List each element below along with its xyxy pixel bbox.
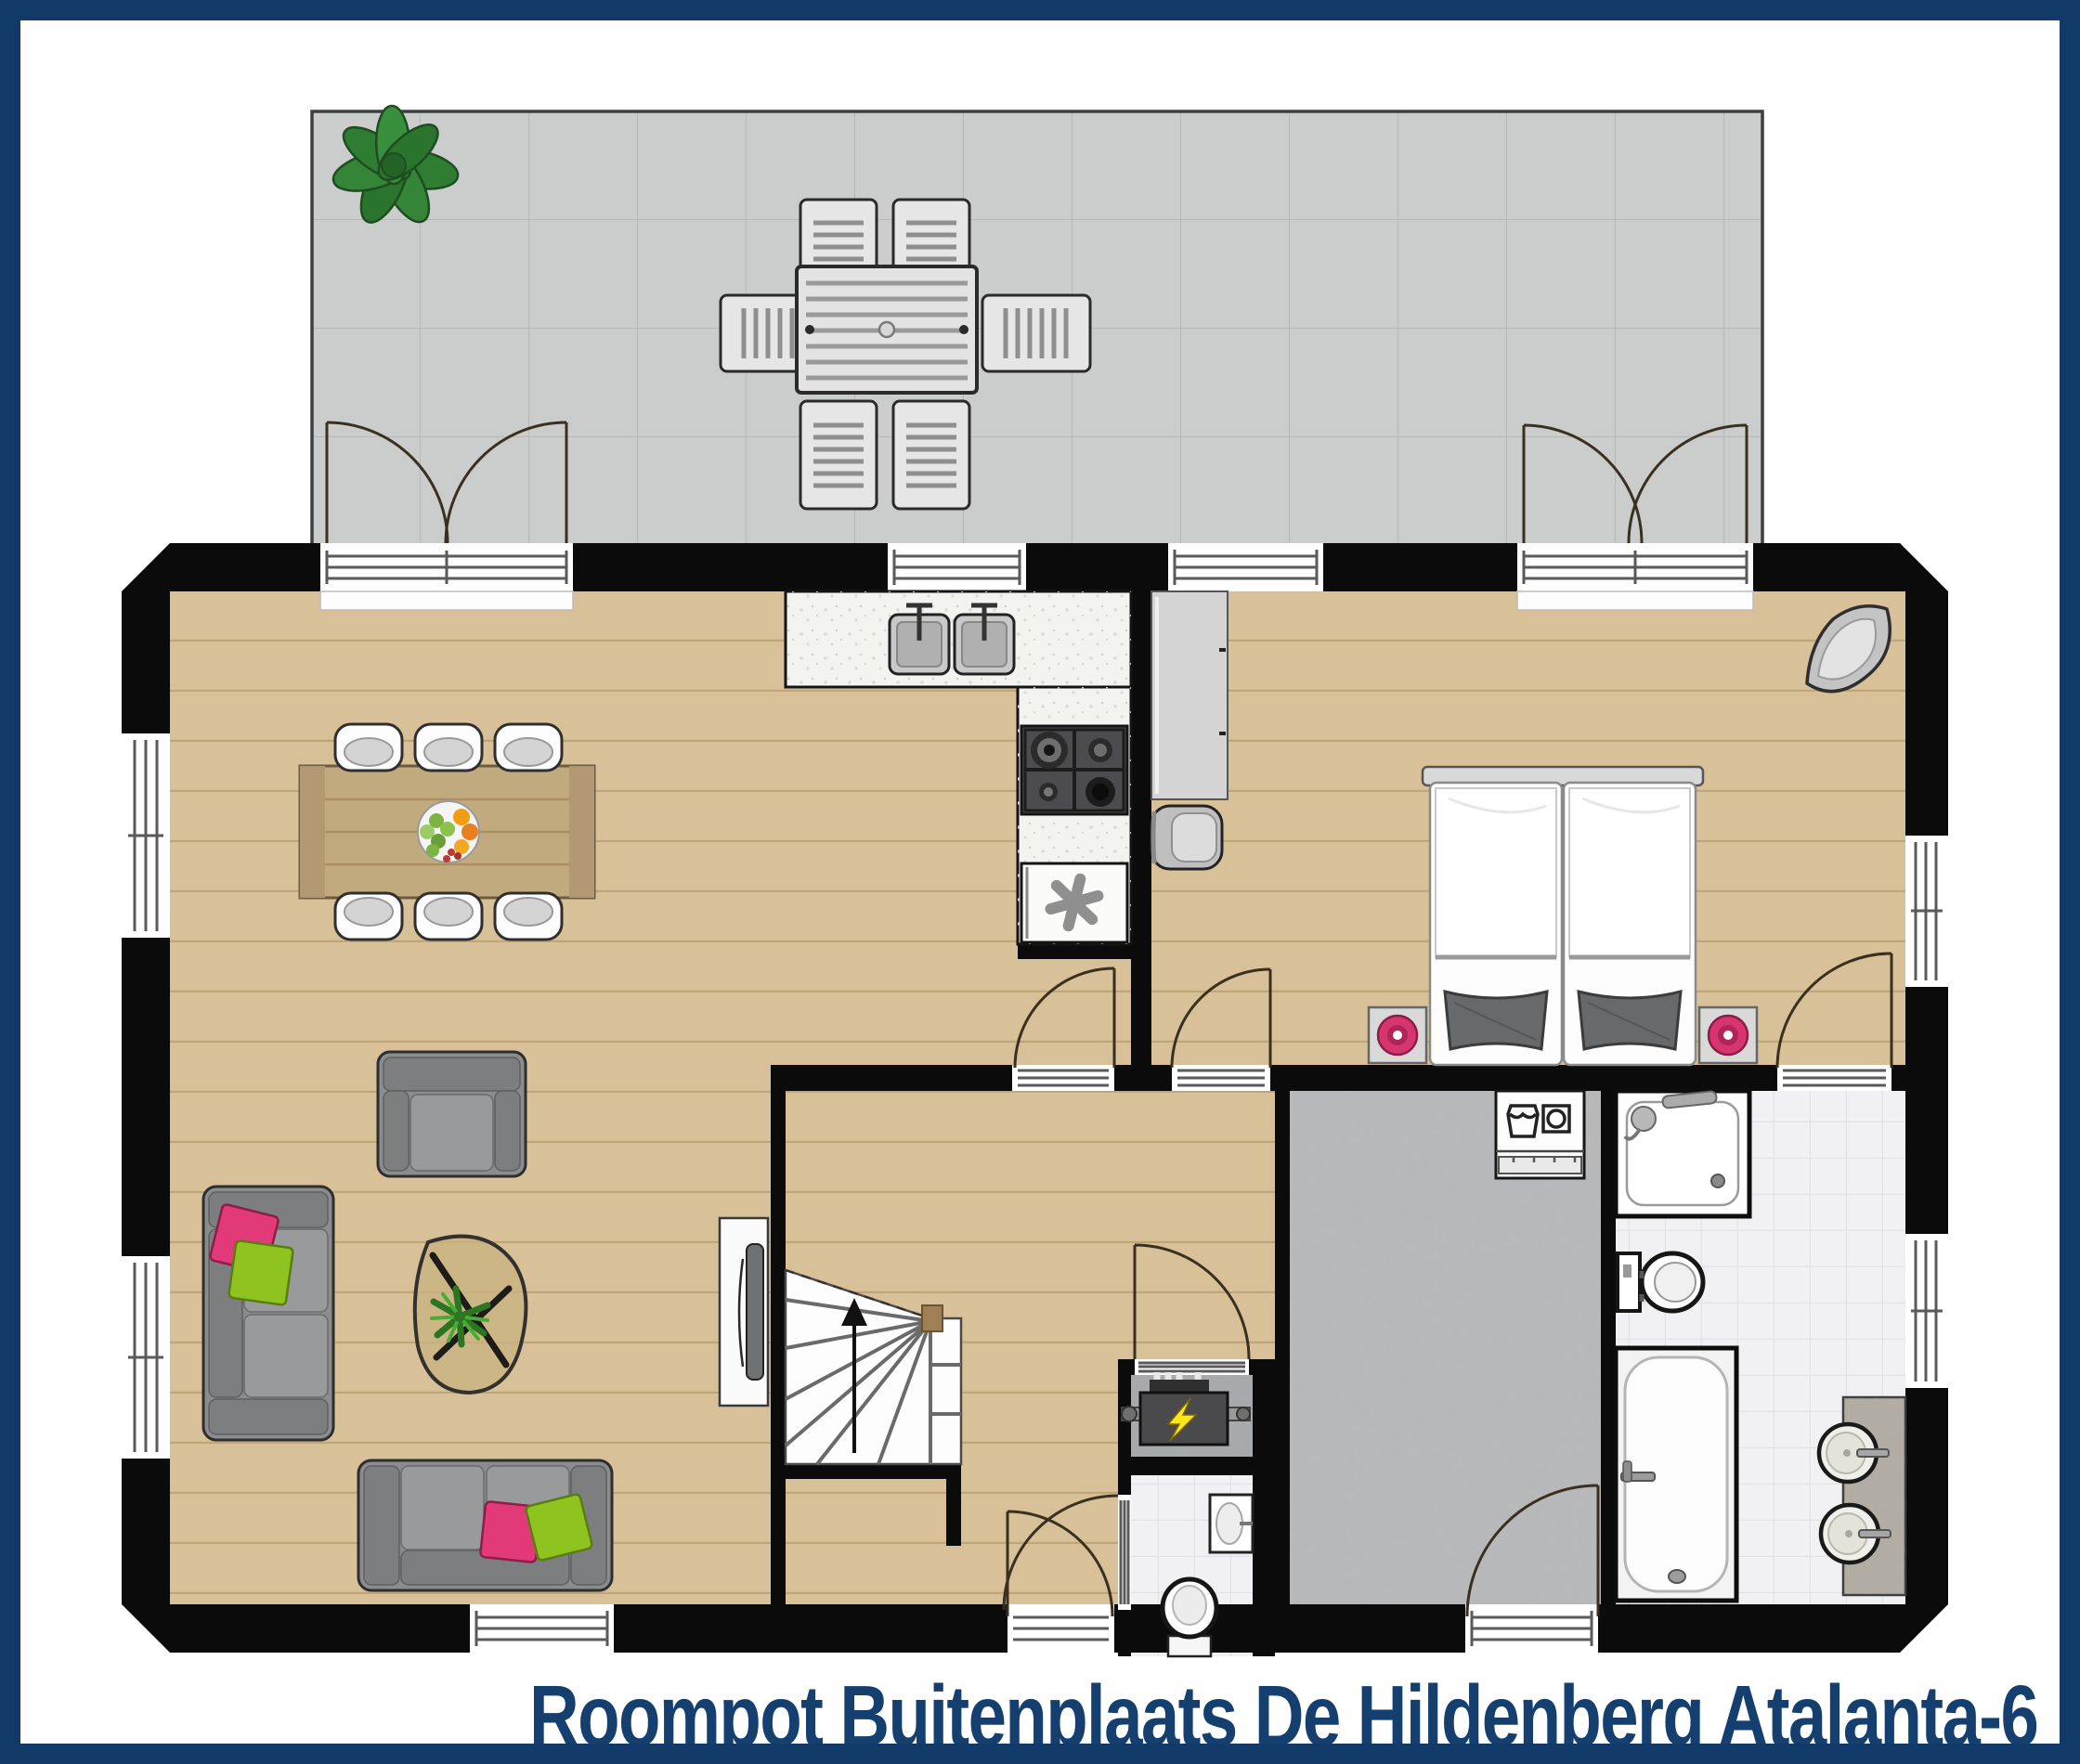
sofa-left	[203, 1187, 333, 1440]
sofa-bottom	[358, 1460, 612, 1590]
fruit-bowl-icon	[418, 801, 479, 863]
stove	[1021, 726, 1127, 814]
door-bathroom	[1777, 1065, 1891, 1091]
window-bedroom-top	[1168, 543, 1323, 591]
utility-room	[1496, 1091, 1584, 1178]
bathtub	[1616, 1348, 1736, 1601]
wardrobe-cabinet	[1151, 591, 1228, 799]
outdoor-table	[797, 266, 977, 393]
door-toilet-room	[1118, 1495, 1131, 1610]
shower	[1616, 1091, 1749, 1216]
dining-table	[300, 766, 594, 898]
door-kitchen-hall	[1012, 1065, 1114, 1091]
window-bedroom-right	[1905, 836, 1948, 987]
armchair	[378, 1052, 526, 1176]
wall-basin	[1210, 1495, 1253, 1552]
wall-unit	[1151, 806, 1222, 869]
floorplan-drawing	[0, 0, 2080, 1764]
floorplan-page: Roompot Buitenplaats De Hildenberg Atala…	[0, 0, 2080, 1764]
coffee-table	[415, 1237, 526, 1393]
tv-sideboard	[720, 1218, 768, 1406]
sofa-cushions	[480, 1494, 592, 1563]
door-bedroom	[1172, 1065, 1270, 1091]
washing-machine	[1496, 1091, 1584, 1178]
window-living-bottom	[470, 1604, 614, 1653]
double-bed	[1423, 767, 1703, 1065]
toilet	[1163, 1579, 1216, 1656]
front-door	[1007, 1604, 1114, 1653]
freezer	[1021, 863, 1127, 942]
toilet-bathroom	[1618, 1253, 1703, 1311]
stair-newel	[922, 1305, 942, 1331]
window-kitchen	[888, 543, 1026, 591]
window-bathroom-right	[1905, 1234, 1948, 1388]
utility-entrance-door	[1465, 1604, 1598, 1653]
tv-icon	[747, 1244, 763, 1380]
tech-closet-hatch	[1135, 1359, 1249, 1375]
page-title: Roompot Buitenplaats De Hildenberg Atala…	[529, 1667, 2037, 1764]
window-living-left-2	[122, 1256, 170, 1459]
window-living-left-1	[122, 733, 170, 938]
